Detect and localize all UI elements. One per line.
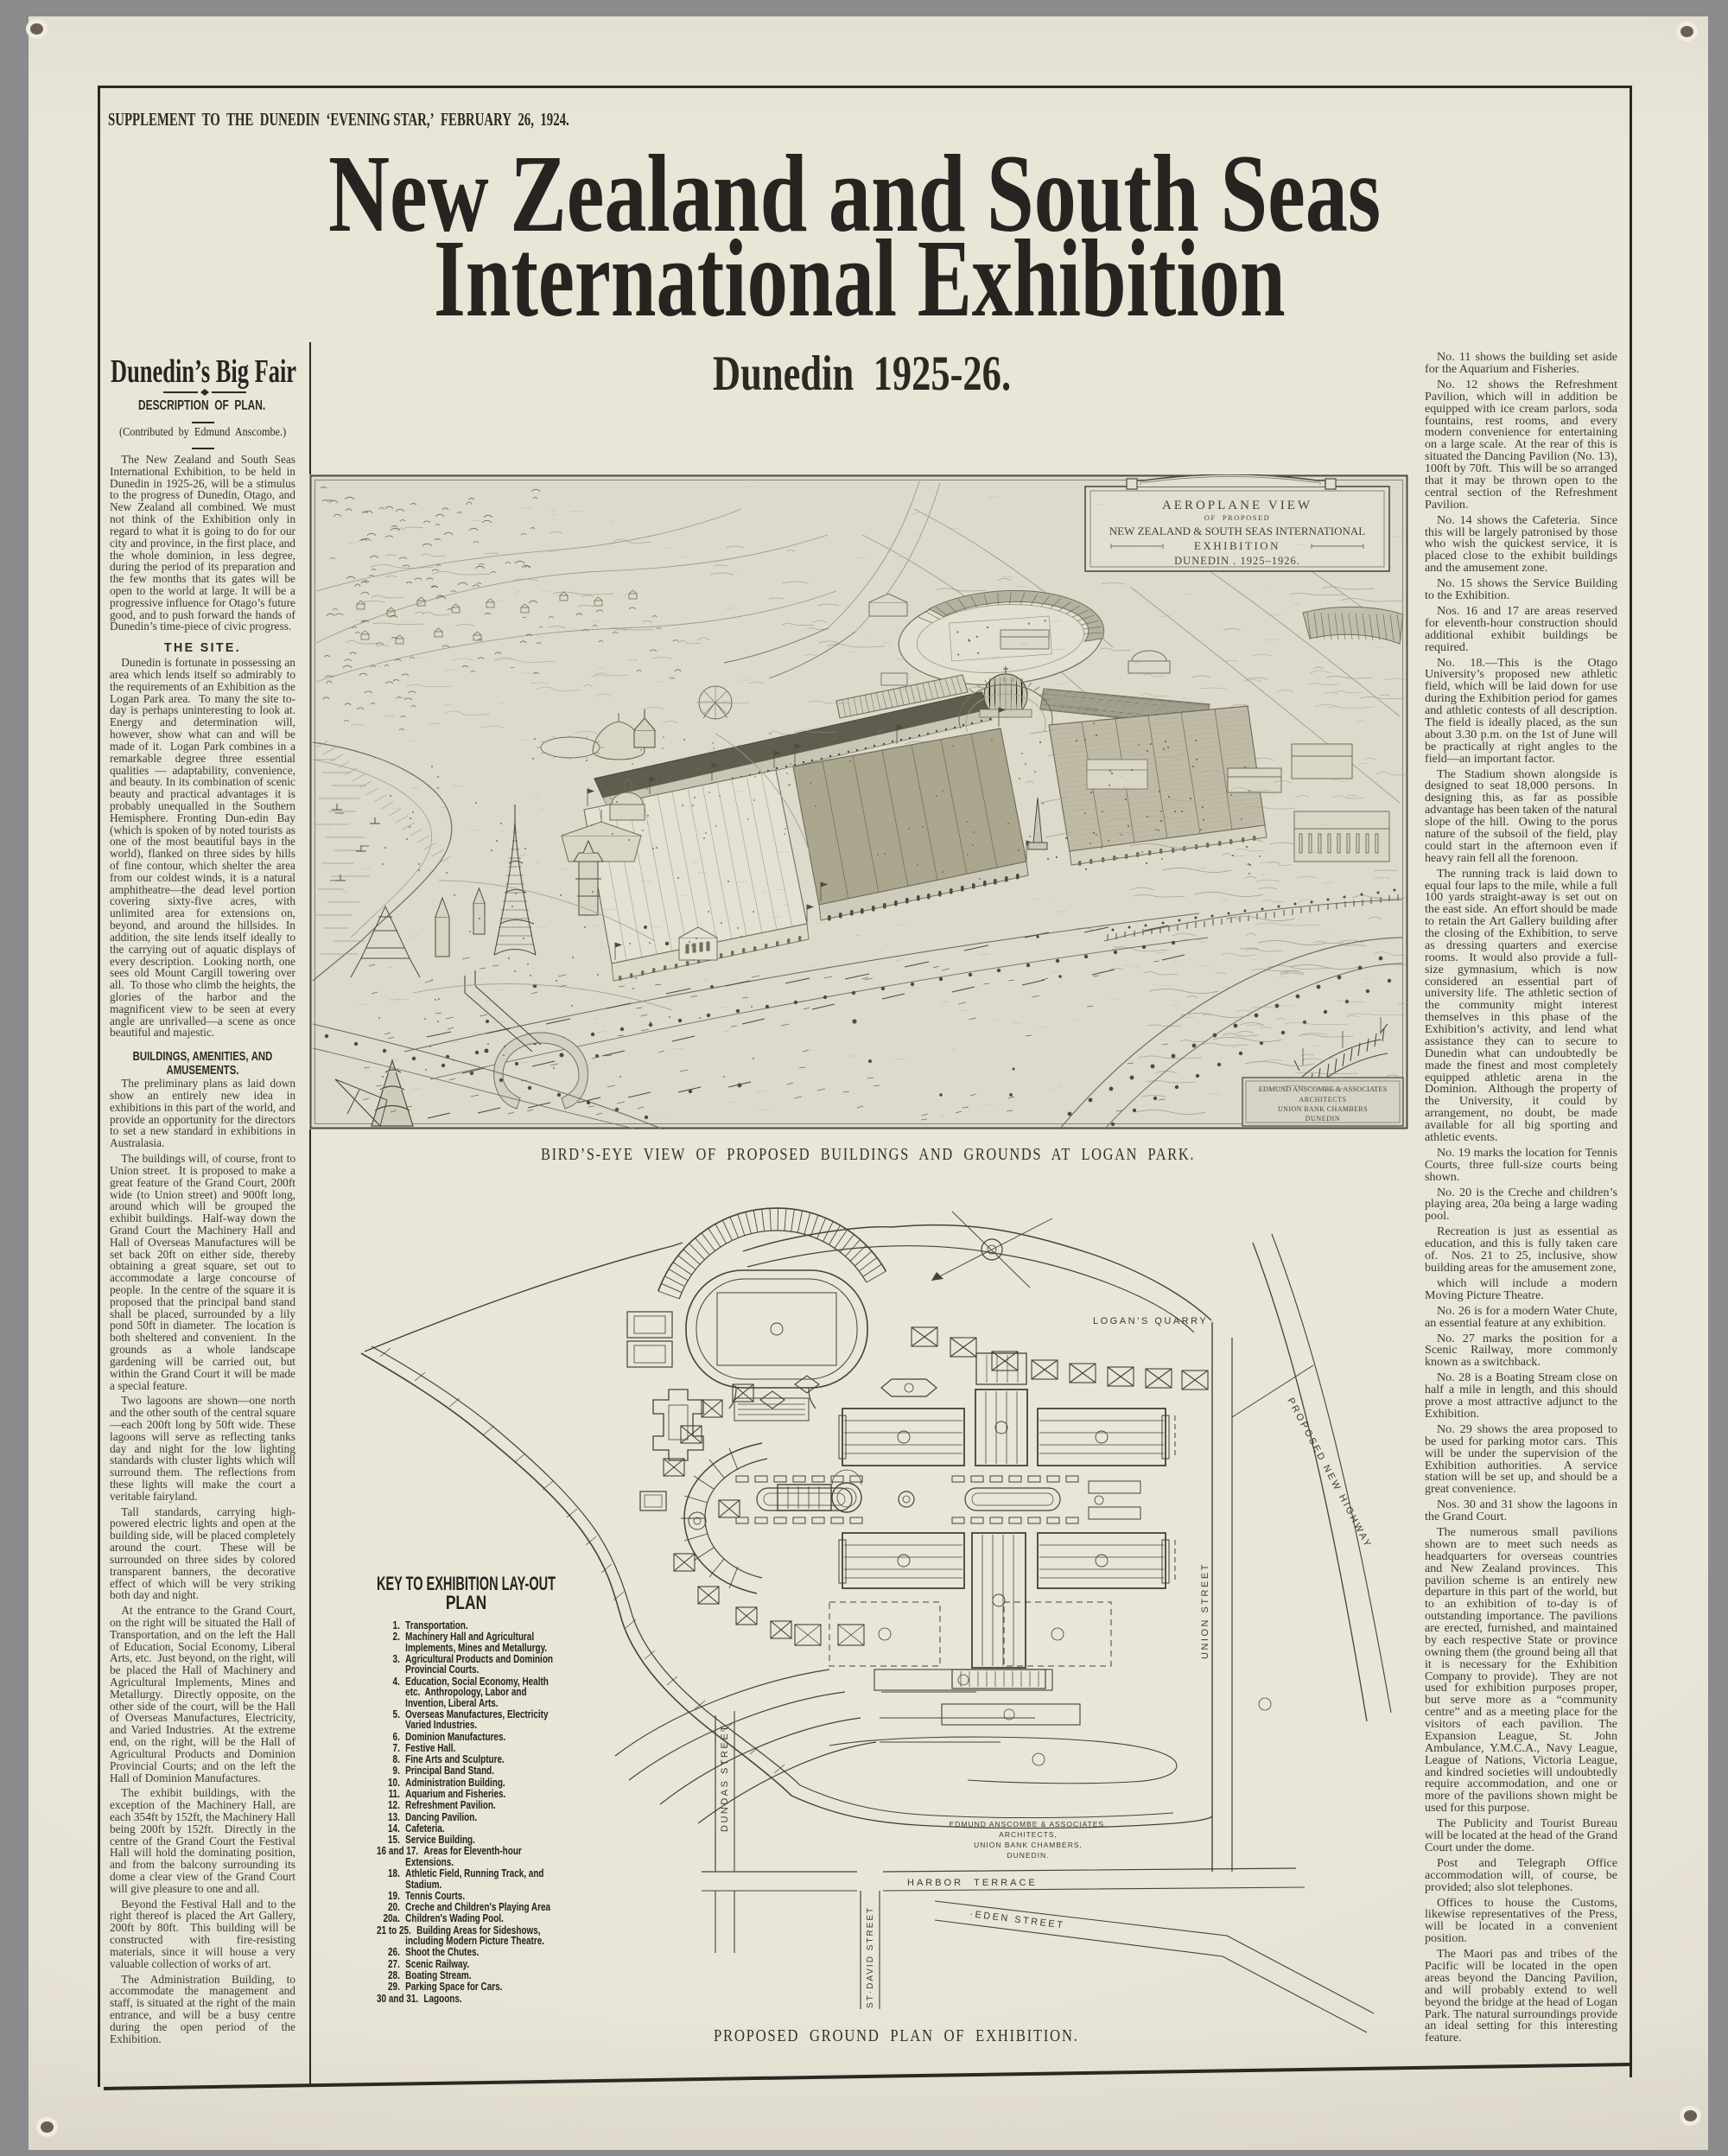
svg-text:ST·DAVID STREET: ST·DAVID STREET: [866, 1906, 875, 2008]
svg-text:NEW ZEALAND & SOUTH SEAS INTER: NEW ZEALAND & SOUTH SEAS INTERNATIONAL: [1109, 525, 1366, 537]
svg-text:UNION BANK CHAMBERS: UNION BANK CHAMBERS: [1278, 1105, 1368, 1113]
svg-text:LOGAN’S QUARRY: LOGAN’S QUARRY: [1093, 1316, 1208, 1326]
svg-text:DUNEDIN: DUNEDIN: [1306, 1115, 1341, 1123]
svg-text:·EDEN STREET: ·EDEN STREET: [969, 1909, 1065, 1930]
svg-text:DUNEDIN . 1925–1926.: DUNEDIN . 1925–1926.: [1174, 555, 1300, 567]
svg-text:DUNDAS STREET: DUNDAS STREET: [720, 1724, 730, 1832]
svg-text:OF PROPOSED: OF PROPOSED: [1204, 513, 1271, 522]
svg-text:UNION BANK CHAMBERS,: UNION BANK CHAMBERS,: [974, 1841, 1083, 1849]
svg-text:ARCHITECTS,: ARCHITECTS,: [999, 1830, 1058, 1839]
svg-text:HARBOR TERRACE: HARBOR TERRACE: [907, 1878, 1038, 1888]
svg-text:UNION STREET: UNION STREET: [1200, 1562, 1210, 1659]
svg-text:AEROPLANE VIEW: AEROPLANE VIEW: [1162, 499, 1312, 512]
svg-text:EDMUND ANSCOMBE & ASSOCIATES,: EDMUND ANSCOMBE & ASSOCIATES,: [950, 1820, 1108, 1828]
svg-text:EDMUND ANSCOMBE & ASSOCIATES: EDMUND ANSCOMBE & ASSOCIATES: [1259, 1084, 1388, 1093]
svg-text:DUNEDIN.: DUNEDIN.: [1007, 1851, 1049, 1860]
svg-text:ARCHITECTS: ARCHITECTS: [1299, 1096, 1346, 1103]
svg-text:EXHIBITION: EXHIBITION: [1194, 539, 1280, 552]
